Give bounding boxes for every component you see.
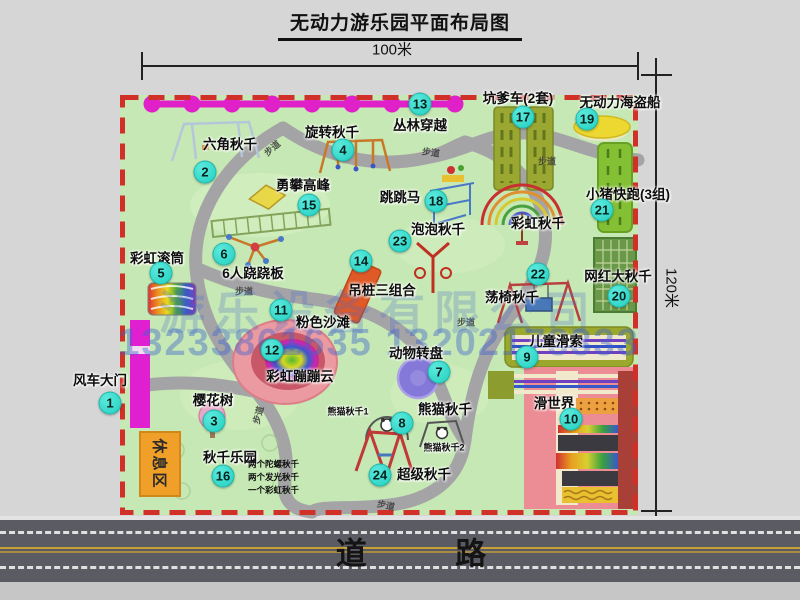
poi-badge-5: 5 [150, 262, 173, 285]
park-map: 游乐设备有限公司 13233861635 13202178333 风车大门 六角… [120, 95, 638, 515]
poi-label-hanging-pile: 吊桩三组合 [348, 279, 416, 299]
path-label-4: 步道 [235, 285, 253, 298]
poi-badge-9: 9 [516, 346, 539, 369]
windmill-gate-icon [130, 320, 150, 428]
poi-badge-4: 4 [332, 139, 355, 162]
poi-badge-16: 16 [212, 465, 235, 488]
road: 道 路 [0, 520, 800, 582]
poi-badge-20: 20 [608, 285, 631, 308]
page-title: 无动力游乐园平面布局图 [278, 8, 522, 41]
swing-park-note-1: 两个陀螺秋千 [248, 458, 299, 470]
poi-label-animal-turntable: 动物转盘 [389, 342, 443, 362]
panda-swing-2-label: 熊猫秋千2 [423, 441, 464, 454]
right-dimension-tick-bottom [641, 510, 672, 512]
poi-label-net-swing: 网红大秋千 [584, 265, 652, 285]
poi-badge-7: 7 [428, 361, 451, 384]
pink-beach-icon [233, 320, 337, 404]
road-label: 道 路 [306, 529, 495, 574]
poi-label-bubble-swing: 泡泡秋千 [411, 218, 465, 238]
poi-label-seesaw: 6人跷跷板 [222, 262, 284, 282]
poi-label-super-swing: 超级秋千 [397, 463, 451, 483]
swing-park-note-3: 一个彩虹秋千 [248, 484, 299, 496]
poi-badge-1: 1 [99, 392, 122, 415]
poi-label-pink-beach: 粉色沙滩 [296, 311, 350, 331]
screenshot-page: 无动力游乐园平面布局图 100米 120米 [0, 0, 800, 600]
poi-label-windmill-gate: 风车大门 [73, 369, 127, 389]
poi-label-rainbow-swing: 彩虹秋千 [511, 212, 565, 232]
poi-badge-24: 24 [369, 464, 392, 487]
poi-badge-22: 22 [527, 263, 550, 286]
poi-badge-17: 17 [512, 106, 535, 129]
map-graphics [120, 95, 638, 515]
top-dimension-tick-left [141, 52, 143, 80]
poi-label-pit-cart: 坑爹车(2套) [483, 87, 554, 107]
poi-badge-15: 15 [298, 194, 321, 217]
poi-label-rainbow-cloud: 彩虹蹦蹦云 [266, 365, 334, 385]
poi-label-cherry-tree: 樱花树 [193, 389, 234, 409]
path-label-5: 步道 [457, 316, 475, 329]
poi-badge-14: 14 [350, 250, 373, 273]
poi-badge-11: 11 [270, 299, 293, 322]
poi-label-swing-chair: 荡椅秋千 [485, 286, 539, 306]
poi-badge-6: 6 [213, 243, 236, 266]
top-dimension-line [142, 65, 638, 67]
poi-badge-23: 23 [389, 230, 412, 253]
road-bottom-strip [0, 582, 800, 600]
path-label-3: 步道 [538, 155, 556, 168]
right-dimension-tick-top [641, 74, 672, 76]
poi-label-jumping-horse: 跳跳马 [380, 186, 421, 206]
rainbow-roller-icon [148, 283, 196, 315]
poi-label-climbing: 勇攀高峰 [276, 174, 330, 194]
swing-park-note-2: 两个发光秋千 [248, 471, 299, 483]
poi-label-panda-swing: 熊猫秋千 [418, 398, 472, 418]
poi-badge-21: 21 [591, 199, 614, 222]
right-dimension-label: 120米 [662, 268, 683, 308]
slide-world-icon [488, 367, 638, 509]
top-dimension-tick-right [637, 52, 639, 80]
poi-badge-12: 12 [261, 339, 284, 362]
poi-label-kids-zipline: 儿童滑索 [529, 330, 583, 350]
top-dimension-label: 100米 [372, 39, 412, 60]
panda-swing-1-label: 熊猫秋千1 [327, 405, 368, 418]
poi-badge-13: 13 [409, 93, 432, 116]
poi-badge-3: 3 [203, 410, 226, 433]
poi-label-hexagon-swing: 六角秋千 [203, 133, 257, 153]
poi-label-rotating-swing: 旋转秋千 [305, 121, 359, 141]
poi-badge-10: 10 [560, 408, 583, 431]
path-label-2: 步道 [421, 144, 441, 159]
rest-area-label: 休息区 [150, 438, 171, 489]
right-dimension-line [655, 58, 657, 516]
poi-label-jungle-crossing: 丛林穿越 [393, 114, 447, 134]
poi-badge-19: 19 [576, 108, 599, 131]
poi-badge-8: 8 [391, 412, 414, 435]
poi-badge-2: 2 [194, 161, 217, 184]
poi-badge-18: 18 [425, 190, 448, 213]
